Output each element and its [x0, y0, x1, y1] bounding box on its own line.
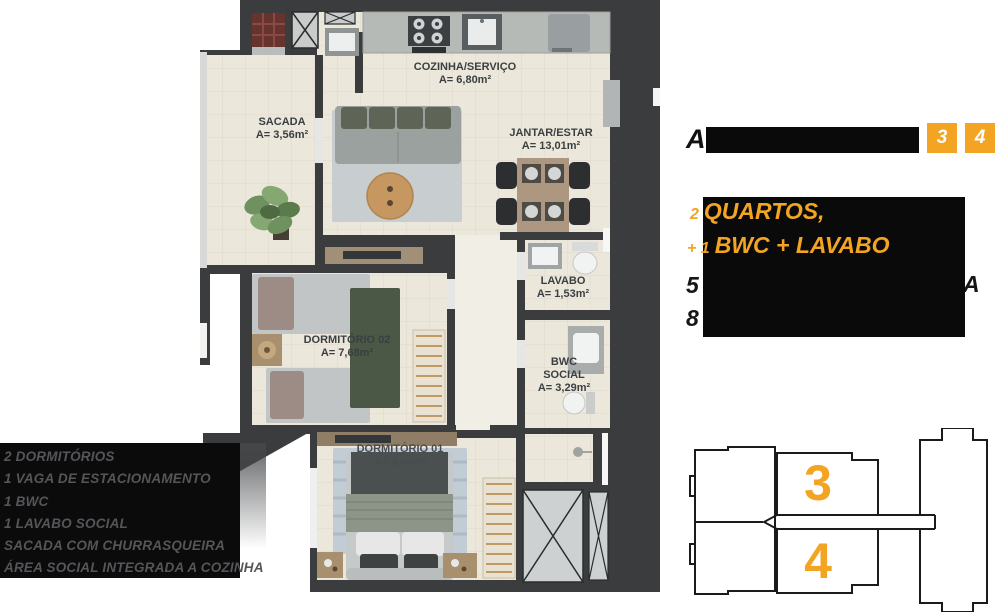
redaction-bar	[706, 127, 919, 153]
keyplan-unit-number-4: 4	[798, 536, 838, 586]
feature-item: 1 BWC	[4, 491, 240, 513]
feature-item: SACADA COM CHURRASQUEIRA	[4, 535, 240, 557]
feature-item: 2 DORMITÓRIOS	[4, 446, 240, 468]
window	[653, 88, 660, 106]
ventilation-shaft	[292, 12, 318, 48]
coffee-table	[367, 173, 413, 219]
wardrobe	[413, 330, 445, 422]
nightstand	[443, 553, 477, 578]
tv-sideboard	[325, 247, 423, 264]
wardrobe	[483, 478, 515, 578]
hall-floor	[455, 235, 517, 430]
nightstand	[252, 334, 282, 366]
room-label-bwc: BWC SOCIALA= 3,29m²	[532, 356, 596, 395]
service-floor	[525, 434, 593, 482]
fridge	[548, 14, 590, 52]
redacted-text-fragment: 8	[686, 305, 699, 331]
room-label-dormitorio-01: DORMITÓRIO 01A= 9,05m²	[357, 443, 444, 469]
lavabo-door	[517, 252, 525, 280]
stove	[408, 16, 450, 53]
window	[603, 228, 610, 252]
room-label-sacada: SACADAA= 3,56m²	[256, 116, 308, 142]
room-label-jantar: JANTAR/ESTARA= 13,01m²	[509, 127, 592, 153]
room-label-lavabo: LAVABOA= 1,53m²	[537, 275, 589, 301]
page: SACADAA= 3,56m² COZINHA/SERVIÇOA= 6,80m²…	[0, 0, 1003, 612]
nightstand	[317, 552, 343, 578]
duct-shaft	[589, 492, 608, 580]
entry-door	[603, 80, 620, 127]
keyplan-right-unit	[920, 428, 987, 612]
double-bed	[346, 452, 453, 580]
lavabo-toilet	[572, 242, 598, 274]
highlight-prefix: 2	[690, 206, 699, 223]
kitchen-sink	[462, 14, 502, 50]
shadow-gradient	[240, 443, 266, 575]
redacted-text-fragment: 5	[686, 272, 699, 298]
keyplan-left-unit	[695, 447, 775, 594]
keyplan-corridor-arrow	[764, 515, 935, 529]
elevator-shaft	[523, 490, 583, 582]
highlight-line-bwc-lavabo: + 1BWC + LAVABO	[687, 232, 890, 262]
barbecue-grill	[252, 13, 285, 55]
bwc-door	[517, 340, 525, 368]
floorplan-drawing	[200, 0, 662, 592]
sofa	[335, 106, 461, 164]
redacted-text-fragment: A	[963, 271, 980, 297]
feature-item: 1 VAGA DE ESTACIONAMENTO	[4, 468, 240, 490]
window	[602, 433, 608, 485]
lavabo-washbasin	[528, 243, 562, 269]
balcony-floor	[207, 55, 315, 265]
bedroom1-window	[310, 468, 317, 548]
balcony-door	[315, 118, 323, 163]
bedroom2-door	[447, 279, 455, 309]
service-sink	[325, 28, 359, 56]
feature-item: ÁREA SOCIAL INTEGRADA A COZINHA	[4, 557, 240, 579]
highlight-prefix: + 1	[687, 240, 710, 257]
feature-item: 1 LAVABO SOCIAL	[4, 513, 240, 535]
highlight-line-quartos: 2QUARTOS,	[690, 198, 824, 228]
room-label-dormitorio-02: DORMITÓRIO 02A= 7,68m²	[304, 334, 391, 360]
floorplan: SACADAA= 3,56m² COZINHA/SERVIÇOA= 6,80m²…	[200, 0, 662, 592]
building-key-plan	[685, 428, 1003, 612]
unit-badge-3: 3	[927, 123, 957, 153]
room-label-cozinha: COZINHA/SERVIÇOA= 6,80m²	[414, 61, 516, 87]
window	[200, 323, 207, 358]
bwc-toilet	[563, 392, 595, 414]
keyplan-unit-number-3: 3	[798, 458, 838, 508]
unit-badge-4: 4	[965, 123, 995, 153]
features-list: 2 DORMITÓRIOS 1 VAGA DE ESTACIONAMENTO 1…	[0, 443, 240, 578]
title-visible-letter: A	[686, 124, 706, 154]
balcony-railing	[200, 52, 207, 268]
duct-box	[325, 12, 355, 24]
